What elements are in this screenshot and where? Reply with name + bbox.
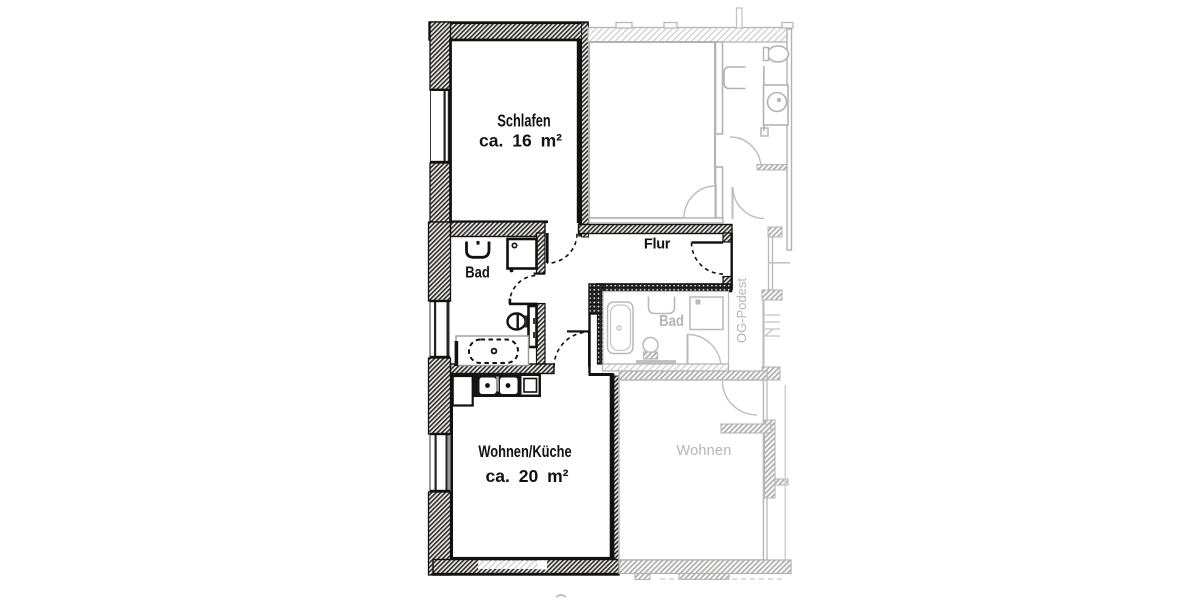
svg-text:Bad: Bad — [659, 313, 684, 330]
svg-text:Bad: Bad — [465, 265, 490, 282]
svg-text:Wohnen/Küche: Wohnen/Küche — [478, 444, 571, 462]
svg-text:Flur: Flur — [644, 237, 671, 253]
svg-text:Wohnen: Wohnen — [677, 443, 732, 459]
svg-text:ca. 20 m²: ca. 20 m² — [486, 466, 569, 486]
svg-text:OG-Podest: OG-Podest — [734, 278, 749, 343]
svg-text:ca. 16 m²: ca. 16 m² — [479, 131, 562, 151]
svg-text:Schlafen: Schlafen — [497, 112, 550, 131]
